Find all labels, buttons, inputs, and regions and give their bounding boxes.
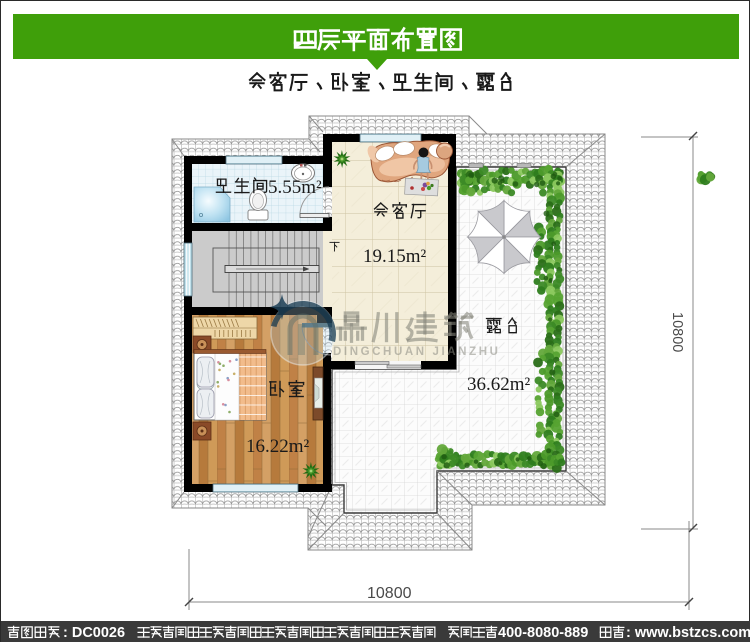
- svg-text:400-8080-889: 400-8080-889: [498, 625, 588, 641]
- svg-text:: www.bstzcs.com: : www.bstzcs.com: [626, 625, 750, 641]
- svg-text:: DC0026: : DC0026: [63, 625, 125, 641]
